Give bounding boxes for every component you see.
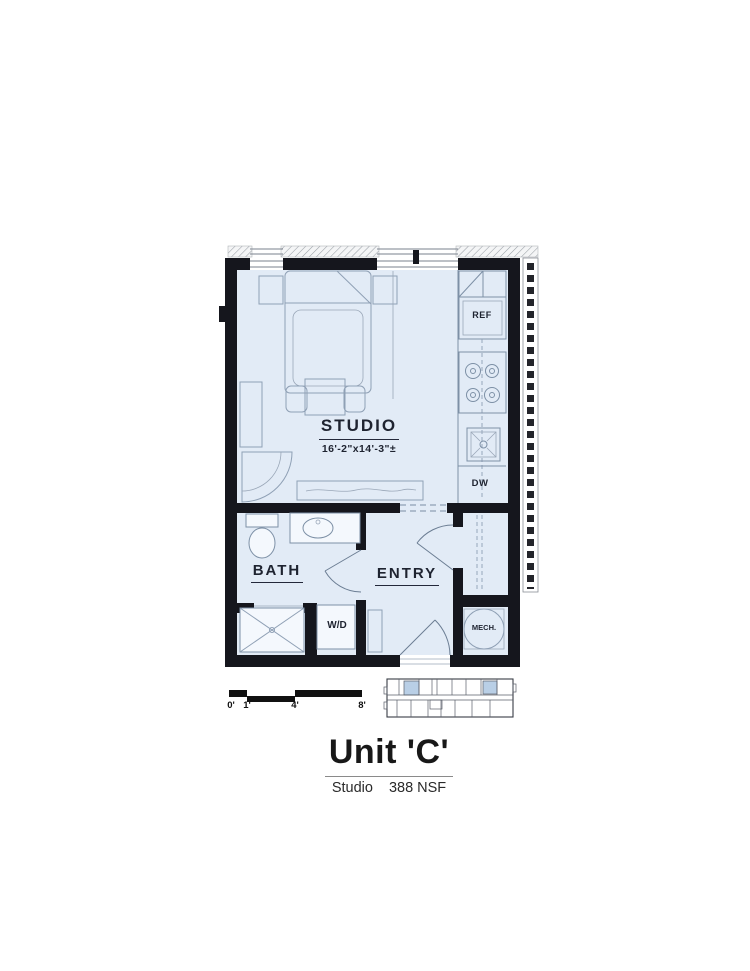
- scale-tick-8: 8': [350, 700, 374, 711]
- title-divider: [325, 776, 453, 777]
- window-mullion: [413, 250, 419, 264]
- entry-name: ENTRY: [375, 565, 439, 586]
- fixture-label-dishwasher: DW: [455, 478, 505, 489]
- studio-dimensions: 16'-2"x14'-3"±: [294, 443, 424, 455]
- unit-type: Studio: [332, 780, 373, 796]
- room-label-studio: STUDIO 16'-2"x14'-3"±: [294, 416, 424, 455]
- vanity-sink: [290, 513, 360, 543]
- scale-tick-4: 4': [283, 700, 307, 711]
- bath-name: BATH: [251, 562, 304, 583]
- fixture-label-refrigerator: REF: [457, 310, 507, 320]
- unit-area: 388 NSF: [389, 780, 446, 796]
- studio-name: STUDIO: [319, 416, 399, 440]
- key-plan-unit-highlight: [483, 681, 497, 694]
- toilet: [246, 514, 278, 558]
- exterior-dashed-strip: [523, 258, 538, 592]
- floor-plan-drawing: [0, 0, 750, 971]
- key-plan-unit-highlight: [404, 681, 419, 695]
- fixture-label-washer-dryer: W/D: [311, 620, 363, 631]
- key-plan: [384, 679, 516, 717]
- room-label-bath: BATH: [227, 562, 327, 583]
- room-label-entry: ENTRY: [357, 565, 457, 586]
- unit-subtitle: Studio 388 NSF: [264, 780, 514, 796]
- shower: [240, 606, 304, 652]
- exterior-hatch-band: [228, 246, 538, 257]
- scale-tick-1: 1': [235, 700, 259, 711]
- floor-plan-page: STUDIO 16'-2"x14'-3"± BATH ENTRY REF DW …: [0, 0, 750, 971]
- unit-title: Unit 'C': [264, 733, 514, 772]
- fixture-label-mech: MECH.: [459, 623, 509, 632]
